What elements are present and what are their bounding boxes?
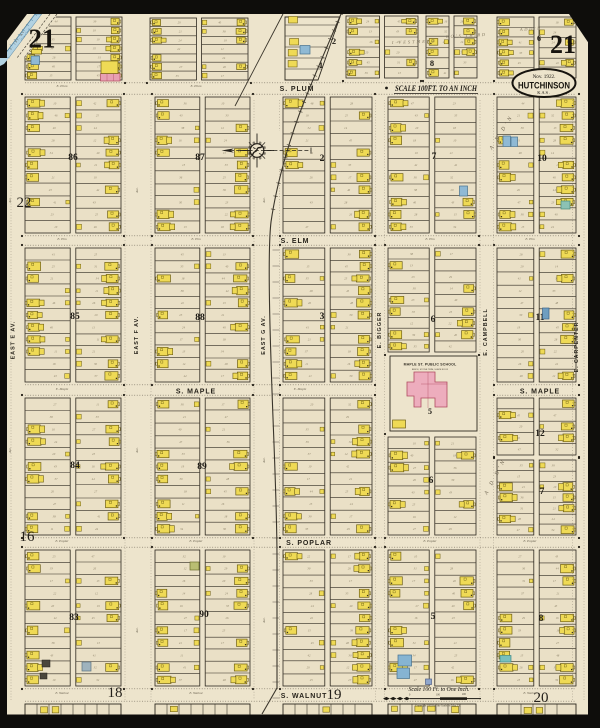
svg-text:E. Elm: E. Elm <box>524 237 535 241</box>
svg-text:15: 15 <box>306 265 310 269</box>
svg-text:35: 35 <box>306 427 310 431</box>
svg-text:21: 21 <box>94 163 98 167</box>
svg-text:32: 32 <box>349 440 353 444</box>
svg-text:13: 13 <box>223 252 227 256</box>
svg-text:29: 29 <box>346 415 350 419</box>
svg-text:10: 10 <box>537 154 547 164</box>
svg-text:E. CARPENTER: E. CARPENTER <box>574 322 580 373</box>
svg-text:27: 27 <box>53 402 57 406</box>
svg-text:23: 23 <box>92 452 96 456</box>
svg-text:36: 36 <box>227 440 231 444</box>
svg-text:15: 15 <box>309 502 313 506</box>
svg-text:14: 14 <box>460 40 464 44</box>
svg-text:17: 17 <box>180 338 184 342</box>
svg-text:22: 22 <box>17 195 32 211</box>
svg-text:EAST G AV.: EAST G AV. <box>261 315 267 354</box>
svg-text:15: 15 <box>517 474 521 478</box>
svg-text:33: 33 <box>50 567 54 571</box>
svg-text:15: 15 <box>553 496 557 500</box>
svg-text:41: 41 <box>444 71 448 75</box>
svg-text:SCALE 100FT. TO AN INCH: SCALE 100FT. TO AN INCH <box>395 84 478 93</box>
svg-text:21: 21 <box>451 441 455 445</box>
svg-text:S. ELM: S. ELM <box>281 238 310 245</box>
svg-text:19: 19 <box>224 38 228 42</box>
svg-text:24: 24 <box>179 38 183 42</box>
svg-text:42: 42 <box>93 101 97 105</box>
svg-text:26: 26 <box>52 56 56 60</box>
svg-text:45: 45 <box>517 413 521 417</box>
svg-text:10: 10 <box>221 101 225 105</box>
svg-text:40: 40 <box>53 126 57 130</box>
svg-text:39: 39 <box>309 515 313 519</box>
svg-text:47: 47 <box>517 528 521 532</box>
svg-text:Ave.: Ave. <box>8 447 12 454</box>
svg-text:21: 21 <box>557 592 561 596</box>
svg-text:Ave.: Ave. <box>262 457 266 464</box>
svg-text:E. Plum: E. Plum <box>56 84 68 88</box>
svg-text:34: 34 <box>453 225 457 229</box>
svg-text:33: 33 <box>519 51 523 55</box>
svg-text:5: 5 <box>431 612 436 622</box>
svg-text:14: 14 <box>450 287 454 291</box>
svg-text:36: 36 <box>454 466 458 470</box>
svg-text:35: 35 <box>93 47 97 51</box>
svg-text:43: 43 <box>555 554 559 558</box>
svg-text:21: 21 <box>454 641 458 645</box>
svg-text:KAS.: KAS. <box>537 90 551 95</box>
svg-text:30: 30 <box>349 653 353 657</box>
svg-text:13: 13 <box>553 126 557 130</box>
svg-text:32: 32 <box>183 554 187 558</box>
svg-text:17: 17 <box>184 629 188 633</box>
svg-text:86: 86 <box>68 153 78 163</box>
svg-text:46: 46 <box>55 114 59 118</box>
svg-text:20: 20 <box>222 579 226 583</box>
svg-text:19: 19 <box>327 687 342 703</box>
svg-text:19: 19 <box>93 29 97 33</box>
svg-text:16: 16 <box>221 502 225 506</box>
svg-text:11: 11 <box>96 402 99 406</box>
svg-text:47: 47 <box>518 448 522 452</box>
svg-text:19: 19 <box>97 604 101 608</box>
svg-text:21: 21 <box>29 24 56 54</box>
svg-text:37: 37 <box>308 452 312 456</box>
svg-text:18: 18 <box>108 685 123 701</box>
svg-text:45: 45 <box>349 139 353 143</box>
svg-text:48: 48 <box>346 641 350 645</box>
svg-text:HUTCHINSON: HUTCHINSON <box>518 81 570 91</box>
svg-text:12: 12 <box>552 374 556 378</box>
svg-text:41: 41 <box>306 325 310 329</box>
svg-text:21: 21 <box>450 151 454 155</box>
svg-text:21: 21 <box>522 485 526 489</box>
svg-text:40: 40 <box>454 333 458 337</box>
svg-text:17: 17 <box>348 176 352 180</box>
svg-text:42: 42 <box>96 188 100 192</box>
svg-text:18: 18 <box>306 114 310 118</box>
svg-text:48: 48 <box>310 101 314 105</box>
svg-text:Copyright 1922 by the Sanborn: Copyright 1922 by the Sanborn Map Co. <box>415 705 461 708</box>
svg-text:17: 17 <box>307 477 311 481</box>
svg-text:20: 20 <box>310 402 314 406</box>
svg-text:38: 38 <box>181 289 185 293</box>
svg-text:12: 12 <box>519 289 523 293</box>
svg-text:47: 47 <box>225 415 229 419</box>
svg-text:29: 29 <box>521 265 525 269</box>
svg-text:15: 15 <box>520 653 524 657</box>
svg-text:46: 46 <box>413 200 417 204</box>
svg-text:13: 13 <box>223 301 227 305</box>
svg-text:18: 18 <box>453 454 457 458</box>
svg-text:30: 30 <box>94 362 98 366</box>
svg-text:24: 24 <box>350 502 354 506</box>
svg-text:E. Walnut: E. Walnut <box>188 691 203 695</box>
svg-text:28: 28 <box>344 200 348 204</box>
svg-text:14: 14 <box>551 151 555 155</box>
svg-text:46: 46 <box>52 65 56 69</box>
svg-text:10: 10 <box>94 176 98 180</box>
svg-text:37: 37 <box>521 592 525 596</box>
svg-text:E. Maple: E. Maple <box>55 387 69 391</box>
svg-text:22: 22 <box>449 321 453 325</box>
svg-text:EAST F AV.: EAST F AV. <box>134 316 140 355</box>
svg-text:39: 39 <box>555 678 559 682</box>
svg-text:37: 37 <box>179 678 183 682</box>
svg-text:E. Elm: E. Elm <box>56 237 67 241</box>
svg-text:40: 40 <box>225 265 229 269</box>
svg-text:44: 44 <box>310 490 314 494</box>
svg-text:35: 35 <box>520 464 524 468</box>
svg-text:43: 43 <box>50 653 54 657</box>
svg-text:22: 22 <box>53 592 57 596</box>
svg-text:27: 27 <box>556 641 560 645</box>
svg-text:18: 18 <box>53 362 57 366</box>
svg-text:46: 46 <box>553 176 557 180</box>
svg-text:30: 30 <box>413 287 417 291</box>
svg-text:22: 22 <box>310 616 314 620</box>
svg-text:17: 17 <box>450 252 454 256</box>
svg-text:18: 18 <box>453 126 457 130</box>
svg-text:19: 19 <box>222 554 226 558</box>
svg-text:11: 11 <box>92 325 95 329</box>
svg-text:18: 18 <box>413 139 417 143</box>
svg-text:45: 45 <box>346 289 350 293</box>
svg-text:BRICK, STONE TRIM, SLATE ROOF: BRICK, STONE TRIM, SLATE ROOF <box>412 368 449 371</box>
svg-text:21: 21 <box>52 176 56 180</box>
svg-text:17: 17 <box>97 65 101 69</box>
svg-text:S. POPLAR: S. POPLAR <box>286 540 332 547</box>
svg-text:12: 12 <box>346 666 350 670</box>
svg-text:17: 17 <box>349 579 353 583</box>
svg-text:48: 48 <box>519 151 523 155</box>
svg-text:34: 34 <box>180 527 184 531</box>
svg-text:25: 25 <box>345 490 349 494</box>
svg-text:E. Plum: E. Plum <box>190 84 202 88</box>
svg-text:39: 39 <box>180 477 184 481</box>
svg-text:45: 45 <box>181 252 185 256</box>
svg-text:24: 24 <box>366 19 370 23</box>
svg-text:17: 17 <box>221 374 225 378</box>
svg-text:39: 39 <box>307 567 311 571</box>
svg-text:18: 18 <box>221 225 225 229</box>
svg-text:31: 31 <box>520 506 524 510</box>
svg-text:14: 14 <box>555 265 559 269</box>
svg-text:14: 14 <box>344 126 348 130</box>
svg-text:22: 22 <box>181 301 185 305</box>
svg-text:31: 31 <box>522 579 526 583</box>
svg-text:42: 42 <box>346 465 350 469</box>
svg-text:35: 35 <box>414 344 418 348</box>
svg-text:17: 17 <box>221 641 225 645</box>
svg-text:38: 38 <box>414 188 418 192</box>
svg-text:23: 23 <box>51 213 55 217</box>
svg-text:47: 47 <box>53 502 57 506</box>
svg-text:83: 83 <box>69 613 79 623</box>
svg-text:41: 41 <box>519 41 523 45</box>
svg-text:15: 15 <box>454 213 458 217</box>
svg-text:28: 28 <box>350 101 354 105</box>
svg-text:21: 21 <box>553 506 557 510</box>
svg-text:41: 41 <box>97 515 101 519</box>
svg-text:33: 33 <box>305 527 309 531</box>
svg-text:29: 29 <box>522 616 526 620</box>
svg-text:24: 24 <box>182 325 186 329</box>
svg-text:13: 13 <box>184 225 188 229</box>
svg-text:41: 41 <box>518 277 522 281</box>
svg-text:33: 33 <box>96 415 100 419</box>
svg-text:20: 20 <box>415 126 419 130</box>
svg-text:45: 45 <box>367 61 371 65</box>
svg-text:29: 29 <box>347 527 351 531</box>
svg-text:28: 28 <box>309 592 313 596</box>
svg-text:38: 38 <box>50 415 54 419</box>
svg-text:26: 26 <box>349 213 353 217</box>
svg-text:43: 43 <box>54 374 58 378</box>
svg-text:46: 46 <box>452 592 456 596</box>
svg-text:36: 36 <box>521 213 525 217</box>
svg-text:36: 36 <box>522 567 526 571</box>
svg-text:26: 26 <box>518 362 522 366</box>
svg-text:14: 14 <box>182 362 186 366</box>
svg-text:41: 41 <box>179 641 183 645</box>
svg-text:23: 23 <box>553 474 557 478</box>
svg-text:10: 10 <box>52 678 56 682</box>
svg-text:20: 20 <box>451 188 455 192</box>
svg-text:38: 38 <box>53 515 57 519</box>
svg-text:34: 34 <box>221 350 225 354</box>
svg-text:20: 20 <box>519 425 523 429</box>
svg-text:36: 36 <box>414 176 418 180</box>
svg-text:38: 38 <box>410 252 414 256</box>
svg-text:40: 40 <box>452 604 456 608</box>
svg-text:17: 17 <box>221 402 225 406</box>
svg-text:30: 30 <box>521 126 525 130</box>
svg-text:23: 23 <box>411 298 415 302</box>
svg-text:26: 26 <box>348 567 352 571</box>
svg-text:Scale 100 Ft. to One Inch.: Scale 100 Ft. to One Inch. <box>408 687 469 693</box>
svg-text:45: 45 <box>397 19 401 23</box>
svg-text:36: 36 <box>223 188 227 192</box>
svg-text:14: 14 <box>345 452 349 456</box>
svg-text:25: 25 <box>449 310 453 314</box>
svg-text:33: 33 <box>410 225 414 229</box>
svg-text:20: 20 <box>51 604 55 608</box>
svg-text:13: 13 <box>96 579 100 583</box>
svg-text:21: 21 <box>517 114 521 118</box>
svg-text:22: 22 <box>554 350 558 354</box>
svg-text:11: 11 <box>54 350 57 354</box>
svg-text:21: 21 <box>349 477 353 481</box>
svg-text:26: 26 <box>51 490 55 494</box>
svg-text:24: 24 <box>551 225 555 229</box>
svg-text:33: 33 <box>552 289 556 293</box>
svg-text:26: 26 <box>308 301 312 305</box>
svg-text:Ave.: Ave. <box>262 197 266 204</box>
svg-text:16: 16 <box>92 465 96 469</box>
svg-text:29: 29 <box>449 275 453 279</box>
svg-text:16: 16 <box>451 678 455 682</box>
svg-text:20: 20 <box>413 478 417 482</box>
svg-text:E. Poplar: E. Poplar <box>522 539 537 543</box>
svg-text:20: 20 <box>396 50 400 54</box>
svg-text:26: 26 <box>92 301 96 305</box>
svg-text:34: 34 <box>551 528 555 532</box>
svg-text:24: 24 <box>311 604 315 608</box>
svg-text:10: 10 <box>453 139 457 143</box>
svg-text:27: 27 <box>94 490 98 494</box>
svg-text:21: 21 <box>92 350 96 354</box>
svg-text:40: 40 <box>178 427 182 431</box>
svg-text:39: 39 <box>350 629 354 633</box>
svg-text:35: 35 <box>176 74 180 78</box>
svg-text:23: 23 <box>452 616 456 620</box>
svg-text:40: 40 <box>223 325 227 329</box>
svg-text:25: 25 <box>53 554 57 558</box>
svg-text:43: 43 <box>415 114 419 118</box>
svg-text:30: 30 <box>519 313 523 317</box>
svg-text:48: 48 <box>556 653 560 657</box>
svg-text:28: 28 <box>450 567 454 571</box>
svg-text:26: 26 <box>93 567 97 571</box>
svg-text:22: 22 <box>556 61 560 65</box>
svg-text:46: 46 <box>94 225 98 229</box>
svg-text:28: 28 <box>554 338 558 342</box>
svg-text:25: 25 <box>310 678 314 682</box>
svg-text:24: 24 <box>224 139 228 143</box>
svg-text:28: 28 <box>553 139 557 143</box>
svg-text:48: 48 <box>350 301 354 305</box>
svg-text:13: 13 <box>223 151 227 155</box>
svg-text:20: 20 <box>521 350 525 354</box>
svg-text:28: 28 <box>52 139 56 143</box>
svg-text:41: 41 <box>183 666 187 670</box>
svg-text:39: 39 <box>306 440 310 444</box>
svg-text:89: 89 <box>197 462 207 472</box>
svg-text:40: 40 <box>410 454 414 458</box>
svg-text:23: 23 <box>551 200 555 204</box>
svg-text:39: 39 <box>348 252 352 256</box>
svg-text:40: 40 <box>218 21 222 25</box>
svg-text:85: 85 <box>70 312 80 322</box>
svg-text:38: 38 <box>52 641 56 645</box>
svg-text:41: 41 <box>93 653 97 657</box>
svg-text:87: 87 <box>195 153 205 163</box>
svg-text:43: 43 <box>449 490 453 494</box>
svg-text:13: 13 <box>398 71 402 75</box>
svg-text:23: 23 <box>412 275 416 279</box>
svg-text:E. Walnut: E. Walnut <box>522 691 537 695</box>
svg-text:13: 13 <box>369 30 373 34</box>
svg-text:47: 47 <box>520 301 524 305</box>
svg-text:31: 31 <box>98 56 102 60</box>
svg-text:12: 12 <box>221 126 225 130</box>
svg-text:25: 25 <box>52 265 56 269</box>
svg-text:16: 16 <box>20 529 36 545</box>
svg-text:40: 40 <box>96 151 100 155</box>
svg-text:43: 43 <box>54 465 58 469</box>
svg-text:36: 36 <box>179 176 183 180</box>
svg-text:45: 45 <box>311 641 315 645</box>
svg-text:6: 6 <box>431 315 436 325</box>
svg-text:21: 21 <box>222 427 226 431</box>
svg-text:40: 40 <box>555 213 559 217</box>
svg-text:32: 32 <box>413 641 417 645</box>
svg-text:E. Elm: E. Elm <box>424 237 435 241</box>
svg-text:21: 21 <box>50 277 54 281</box>
svg-text:44: 44 <box>92 477 96 481</box>
svg-text:30: 30 <box>223 527 227 531</box>
svg-text:88: 88 <box>195 313 205 323</box>
svg-text:44: 44 <box>556 567 560 571</box>
svg-text:12: 12 <box>410 321 414 325</box>
svg-text:20: 20 <box>307 666 311 670</box>
svg-text:28: 28 <box>310 289 314 293</box>
svg-text:39: 39 <box>349 374 353 378</box>
svg-text:21: 21 <box>179 30 183 34</box>
svg-text:25: 25 <box>344 277 348 281</box>
svg-text:21: 21 <box>183 415 187 419</box>
svg-text:43: 43 <box>554 604 558 608</box>
svg-text:26: 26 <box>226 616 230 620</box>
svg-text:13: 13 <box>410 264 414 268</box>
svg-text:35: 35 <box>306 277 310 281</box>
svg-text:33: 33 <box>225 163 229 167</box>
svg-text:43: 43 <box>412 490 416 494</box>
svg-text:12: 12 <box>93 139 97 143</box>
svg-text:33: 33 <box>226 114 230 118</box>
svg-text:21: 21 <box>309 374 313 378</box>
svg-text:15: 15 <box>49 74 53 78</box>
svg-text:E. Elm: E. Elm <box>190 237 201 241</box>
svg-text:22: 22 <box>225 213 229 217</box>
svg-text:23: 23 <box>517 678 521 682</box>
svg-text:E. CAMPBELL: E. CAMPBELL <box>483 308 489 356</box>
svg-text:16: 16 <box>347 362 351 366</box>
svg-text:21: 21 <box>346 325 350 329</box>
svg-text:47: 47 <box>411 101 415 105</box>
svg-text:10: 10 <box>54 225 58 229</box>
svg-text:18: 18 <box>224 515 228 519</box>
svg-text:37: 37 <box>94 374 98 378</box>
svg-text:24: 24 <box>54 440 58 444</box>
svg-text:16: 16 <box>556 616 560 620</box>
svg-text:16: 16 <box>52 427 56 431</box>
svg-text:S. MAPLE: S. MAPLE <box>176 389 216 396</box>
svg-text:42: 42 <box>449 344 453 348</box>
svg-text:18: 18 <box>181 277 185 281</box>
svg-text:29: 29 <box>449 527 453 531</box>
svg-text:42: 42 <box>414 163 418 167</box>
